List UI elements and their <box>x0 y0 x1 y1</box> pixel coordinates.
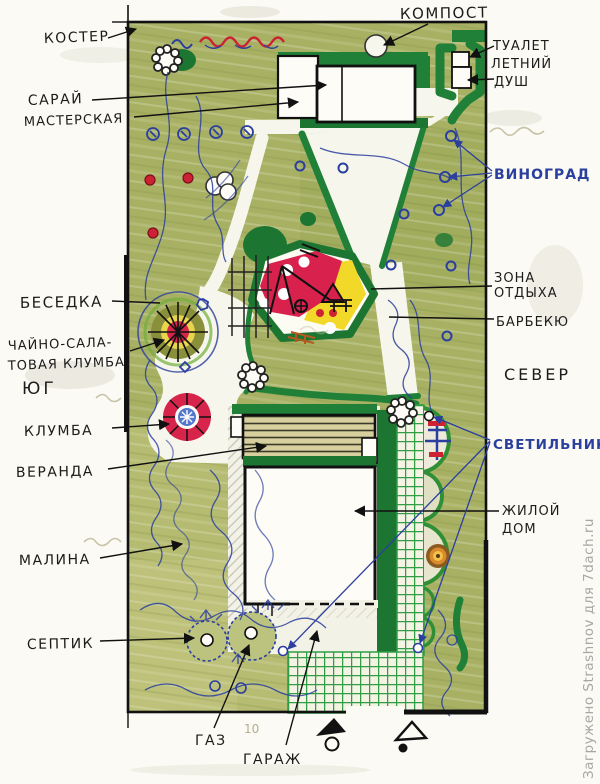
shed-workshop <box>278 56 415 122</box>
label-house-2: ДОМ <box>502 522 537 537</box>
label-compost: КОМПОСТ <box>400 3 489 23</box>
label-tea-bed-1: ЧАЙНО-САЛА- <box>8 334 113 354</box>
well-symbol <box>426 544 450 568</box>
garden-plan-drawing: 10 КОСТЕР САРАЙ МАСТЕРСКАЯ КОМПОСТ ТУАЛЕ… <box>0 0 600 784</box>
watermark: Загружено Strashnov для 7dach.ru <box>581 518 597 779</box>
label-toilet: ТУАЛЕТ <box>492 39 550 54</box>
label-shower-2: ДУШ <box>494 75 529 90</box>
label-grapes: ВИНОГРАД <box>494 167 591 183</box>
label-raspberry: МАЛИНА <box>19 552 91 569</box>
label-lamp: СВЕТИЛЬНИК <box>493 437 600 453</box>
toilet-shower <box>452 52 471 88</box>
label-rest-2: ОТДЫХА <box>494 286 558 301</box>
label-house-1: ЖИЛОЙ <box>502 503 560 519</box>
pencil-dimension-note: 10 <box>244 722 259 736</box>
garden-plan-page: 10 КОСТЕР САРАЙ МАСТЕРСКАЯ КОМПОСТ ТУАЛЕ… <box>0 0 600 784</box>
label-barbecue: БАРБЕКЮ <box>496 315 569 330</box>
compost-bin <box>365 35 387 57</box>
gazebo-spokes <box>148 302 208 362</box>
label-gazebo: БЕСЕДКА <box>20 293 103 312</box>
label-shed-2: МАСТЕРСКАЯ <box>24 112 124 130</box>
label-septic: СЕПТИК <box>27 636 94 653</box>
label-campfire: КОСТЕР <box>44 29 110 47</box>
label-garage: ГАРАЖ <box>243 752 302 768</box>
label-rest-1: ЗОНА <box>494 271 535 286</box>
veranda <box>243 415 375 458</box>
house <box>231 415 378 616</box>
label-south: ЮГ <box>22 379 57 399</box>
label-flowerbed: КЛУМБА <box>24 423 94 440</box>
label-gas: ГАЗ <box>195 733 227 749</box>
flowerbed <box>163 393 211 441</box>
label-shower-1: ЛЕТНИЙ <box>491 56 552 72</box>
label-shed-1: САРАЙ <box>28 89 84 109</box>
label-north: СЕВЕР <box>504 365 571 384</box>
label-veranda: ВЕРАНДА <box>16 464 94 481</box>
entrance-markers <box>316 718 426 753</box>
